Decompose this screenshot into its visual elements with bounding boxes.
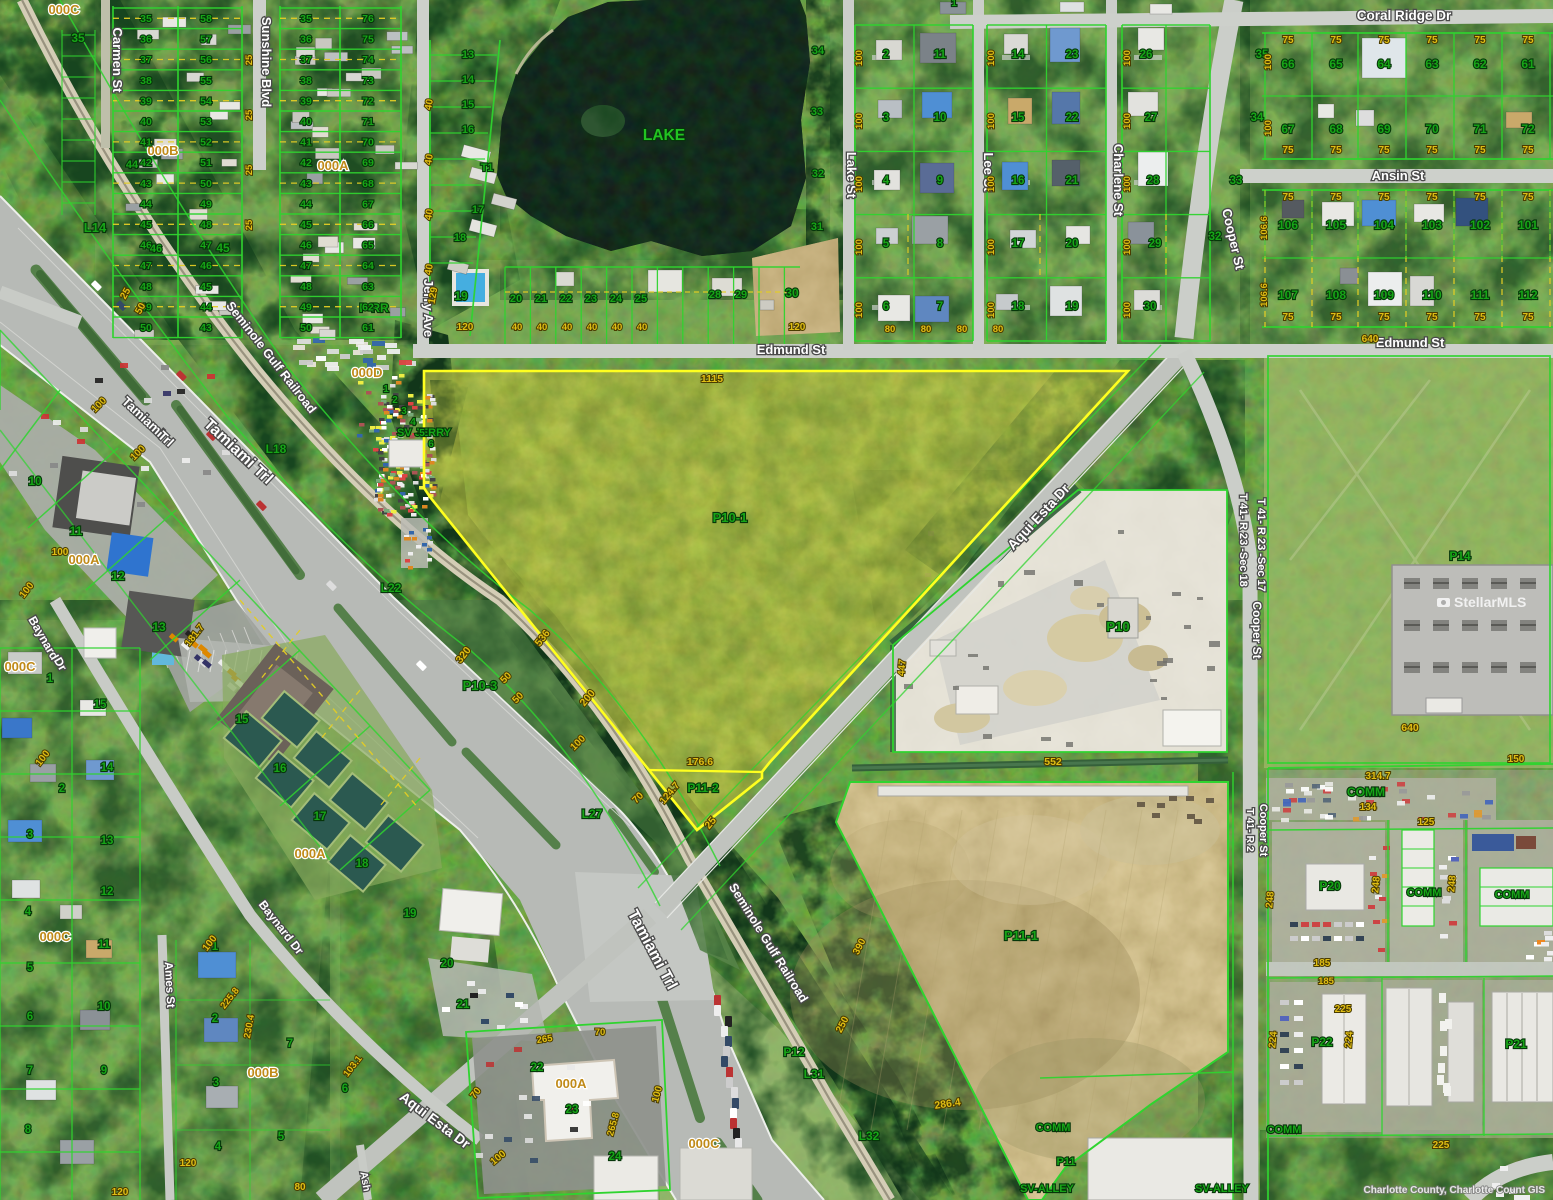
svg-text:T1: T1 [481, 162, 494, 174]
svg-text:COMM: COMM [1495, 889, 1530, 901]
svg-text:100: 100 [854, 176, 865, 192]
svg-text:30: 30 [785, 286, 799, 300]
svg-text:640: 640 [1362, 334, 1379, 345]
svg-text:49: 49 [300, 301, 312, 313]
svg-text:50: 50 [140, 322, 152, 334]
svg-text:51: 51 [200, 157, 212, 169]
svg-text:58: 58 [200, 13, 212, 25]
svg-text:19: 19 [1066, 301, 1079, 313]
svg-text:75: 75 [1426, 192, 1438, 203]
svg-text:71: 71 [1473, 122, 1487, 136]
svg-text:38: 38 [300, 75, 312, 87]
svg-text:49: 49 [200, 198, 212, 210]
svg-text:Carmen St: Carmen St [110, 27, 125, 93]
svg-text:67: 67 [362, 198, 374, 210]
svg-text:100: 100 [1263, 120, 1274, 136]
svg-text:106: 106 [1278, 218, 1298, 232]
svg-text:4: 4 [215, 1141, 222, 1153]
svg-text:40: 40 [512, 322, 523, 333]
svg-text:75: 75 [1282, 35, 1294, 46]
svg-text:248: 248 [1370, 876, 1382, 894]
svg-text:000A: 000A [317, 158, 349, 173]
svg-text:21: 21 [457, 999, 470, 1011]
svg-text:000B: 000B [247, 1065, 278, 1080]
svg-text:7: 7 [27, 1065, 33, 1077]
svg-text:18: 18 [454, 232, 466, 244]
svg-text:100: 100 [986, 239, 997, 255]
svg-text:48: 48 [140, 281, 152, 293]
svg-text:40: 40 [140, 116, 152, 128]
svg-text:T 41- R 2: T 41- R 2 [1244, 808, 1256, 852]
svg-text:75: 75 [1426, 145, 1438, 156]
svg-text:38: 38 [140, 75, 152, 87]
svg-text:110: 110 [1422, 288, 1442, 302]
svg-text:20: 20 [1066, 238, 1079, 250]
svg-text:35: 35 [300, 13, 312, 25]
svg-text:COMM: COMM [1036, 1122, 1071, 1134]
svg-text:T 41- R 23 -Sec 18: T 41- R 23 -Sec 18 [1237, 493, 1249, 587]
svg-text:19: 19 [404, 908, 417, 920]
svg-text:40: 40 [587, 322, 598, 333]
svg-text:44: 44 [300, 198, 312, 210]
svg-text:L32: L32 [859, 1129, 880, 1143]
svg-text:314.7: 314.7 [1365, 771, 1390, 782]
svg-text:100: 100 [1122, 113, 1133, 129]
svg-text:64: 64 [1377, 57, 1391, 71]
svg-text:33: 33 [811, 106, 823, 118]
svg-text:75: 75 [1474, 312, 1486, 323]
svg-text:32: 32 [1209, 231, 1222, 243]
svg-text:185: 185 [1318, 976, 1335, 987]
svg-text:37: 37 [300, 54, 312, 66]
svg-text:40: 40 [612, 322, 623, 333]
svg-text:17: 17 [1012, 238, 1025, 250]
svg-text:36: 36 [300, 34, 312, 46]
svg-text:47: 47 [200, 240, 212, 252]
svg-text:20: 20 [510, 293, 522, 305]
svg-text:1: 1 [951, 0, 957, 9]
svg-text:21: 21 [1066, 175, 1079, 187]
svg-text:63: 63 [362, 281, 374, 293]
svg-text:66: 66 [1281, 57, 1295, 71]
svg-text:80: 80 [885, 324, 896, 335]
svg-text:14: 14 [1012, 49, 1025, 61]
svg-text:P14: P14 [1449, 549, 1471, 563]
svg-text:265: 265 [536, 1033, 554, 1046]
svg-text:50: 50 [200, 178, 212, 190]
svg-text:53: 53 [200, 116, 212, 128]
svg-text:P21: P21 [1505, 1037, 1527, 1051]
svg-text:16: 16 [274, 763, 287, 775]
svg-text:65: 65 [362, 240, 374, 252]
svg-text:72: 72 [1521, 122, 1535, 136]
svg-text:5: 5 [27, 962, 34, 974]
svg-text:7: 7 [937, 301, 943, 313]
svg-text:30: 30 [1144, 301, 1157, 313]
svg-text:100: 100 [1122, 302, 1133, 318]
svg-text:100: 100 [1122, 176, 1133, 192]
svg-text:48: 48 [200, 219, 212, 231]
svg-text:Cooper St: Cooper St [1257, 804, 1269, 857]
svg-text:13: 13 [462, 49, 474, 61]
svg-text:52: 52 [200, 137, 212, 149]
svg-text:23: 23 [585, 293, 597, 305]
svg-text:43: 43 [300, 178, 312, 190]
svg-text:13: 13 [152, 620, 166, 634]
svg-text:75: 75 [1330, 192, 1342, 203]
svg-text:21: 21 [535, 293, 547, 305]
svg-text:45: 45 [200, 281, 212, 293]
svg-text:44: 44 [200, 301, 212, 313]
svg-text:100: 100 [854, 113, 865, 129]
svg-text:111: 111 [1471, 288, 1490, 302]
svg-text:100: 100 [1263, 54, 1274, 70]
svg-text:73: 73 [362, 75, 374, 87]
svg-text:61: 61 [1521, 57, 1535, 71]
svg-text:Sunshine Blvd: Sunshine Blvd [259, 17, 274, 107]
svg-text:248: 248 [1446, 875, 1458, 893]
svg-text:41: 41 [140, 137, 152, 149]
svg-text:69: 69 [1377, 122, 1391, 136]
svg-text:225: 225 [1433, 1140, 1450, 1151]
svg-text:45: 45 [300, 219, 312, 231]
svg-text:70: 70 [1425, 122, 1439, 136]
svg-text:100: 100 [854, 239, 865, 255]
svg-text:185: 185 [1314, 958, 1331, 969]
svg-text:P20: P20 [1319, 879, 1341, 893]
svg-text:T 41- R 23 -Sec 17: T 41- R 23 -Sec 17 [1255, 498, 1267, 592]
svg-text:61: 61 [362, 322, 374, 334]
svg-text:640: 640 [1401, 722, 1419, 734]
svg-text:44: 44 [140, 198, 152, 210]
svg-text:10: 10 [28, 474, 42, 488]
svg-text:8: 8 [25, 1124, 32, 1136]
svg-text:75: 75 [1426, 35, 1438, 46]
svg-text:23: 23 [566, 1104, 579, 1116]
svg-text:39: 39 [300, 95, 312, 107]
svg-text:100: 100 [1122, 50, 1133, 66]
svg-text:107: 107 [1278, 288, 1298, 302]
svg-text:COMM: COMM [1347, 785, 1385, 799]
svg-text:25: 25 [244, 164, 255, 175]
svg-text:Charlotte County, Charlotte Co: Charlotte County, Charlotte Count GIS [1364, 1185, 1546, 1196]
svg-text:45: 45 [140, 219, 152, 231]
svg-text:56: 56 [200, 54, 212, 66]
svg-text:46: 46 [200, 260, 212, 272]
svg-text:39: 39 [140, 95, 152, 107]
svg-text:5: 5 [883, 238, 890, 250]
svg-text:4: 4 [25, 906, 32, 918]
svg-text:000C: 000C [48, 2, 80, 17]
svg-text:45: 45 [216, 241, 230, 255]
svg-text:Ames St: Ames St [162, 962, 176, 1009]
svg-text:15: 15 [94, 699, 107, 711]
svg-text:55: 55 [200, 75, 212, 87]
svg-text:8: 8 [937, 238, 944, 250]
svg-text:67: 67 [1281, 122, 1295, 136]
svg-text:5: 5 [278, 1131, 285, 1143]
svg-text:75: 75 [1378, 145, 1390, 156]
svg-text:125: 125 [1418, 817, 1435, 828]
svg-text:68: 68 [362, 178, 374, 190]
svg-text:65: 65 [1329, 57, 1343, 71]
svg-text:LAKE: LAKE [643, 127, 685, 144]
svg-text:40: 40 [537, 322, 548, 333]
svg-text:75: 75 [1522, 145, 1534, 156]
svg-text:1: 1 [383, 384, 389, 395]
svg-text:68: 68 [1329, 122, 1343, 136]
svg-text:14: 14 [462, 74, 475, 86]
svg-text:106.6: 106.6 [1259, 216, 1270, 240]
svg-text:27: 27 [1145, 112, 1158, 124]
svg-text:28: 28 [709, 289, 721, 301]
svg-text:P22: P22 [1311, 1035, 1333, 1049]
svg-text:75: 75 [1474, 35, 1486, 46]
svg-text:108: 108 [1326, 288, 1346, 302]
svg-text:19: 19 [454, 289, 468, 303]
svg-text:4: 4 [410, 417, 416, 428]
svg-text:24: 24 [610, 293, 623, 305]
svg-text:11: 11 [70, 524, 83, 538]
svg-text:3: 3 [27, 829, 33, 841]
svg-text:000A: 000A [68, 552, 100, 567]
svg-text:5: 5 [419, 428, 425, 439]
svg-text:63: 63 [1425, 57, 1439, 71]
svg-text:106.6: 106.6 [1259, 283, 1270, 307]
svg-text:17: 17 [472, 204, 484, 216]
svg-text:3: 3 [883, 112, 889, 124]
svg-text:100: 100 [854, 302, 865, 318]
svg-text:000D: 000D [351, 365, 382, 380]
svg-text:34: 34 [1251, 112, 1264, 124]
svg-text:12: 12 [111, 569, 125, 583]
svg-text:29: 29 [1149, 238, 1162, 250]
svg-text:100: 100 [986, 113, 997, 129]
svg-text:75: 75 [1378, 312, 1390, 323]
svg-text:Edmund St: Edmund St [1376, 335, 1445, 350]
svg-text:Ansin St: Ansin St [1372, 168, 1425, 183]
svg-text:62: 62 [362, 301, 374, 313]
svg-text:2: 2 [883, 49, 889, 61]
svg-text:104: 104 [1374, 218, 1394, 232]
svg-text:22: 22 [531, 1062, 544, 1074]
svg-text:75: 75 [1378, 35, 1390, 46]
svg-text:35: 35 [71, 31, 85, 45]
svg-text:000C: 000C [39, 929, 71, 944]
svg-text:224: 224 [1267, 1031, 1279, 1049]
svg-text:176.6: 176.6 [687, 756, 713, 768]
svg-text:75: 75 [1330, 145, 1342, 156]
svg-text:40: 40 [300, 116, 312, 128]
svg-text:120: 120 [180, 1158, 197, 1169]
svg-text:6: 6 [27, 1011, 33, 1023]
svg-text:120: 120 [112, 1187, 129, 1198]
svg-text:P10-3: P10-3 [463, 678, 498, 693]
svg-text:47: 47 [300, 260, 312, 272]
svg-text:P12: P12 [783, 1045, 805, 1059]
svg-text:2: 2 [59, 783, 65, 795]
svg-text:57: 57 [200, 34, 212, 46]
svg-text:43: 43 [200, 322, 212, 334]
svg-text:69: 69 [362, 157, 374, 169]
svg-text:74: 74 [362, 54, 374, 66]
svg-text:100: 100 [986, 50, 997, 66]
svg-text:100: 100 [854, 50, 865, 66]
svg-text:105: 105 [1326, 218, 1346, 232]
svg-text:1: 1 [47, 673, 54, 685]
svg-text:72: 72 [362, 95, 374, 107]
svg-text:15: 15 [236, 714, 249, 726]
svg-text:150: 150 [1508, 754, 1525, 765]
svg-text:102: 102 [1470, 218, 1490, 232]
svg-text:40: 40 [637, 322, 648, 333]
svg-text:SV-ALLEY: SV-ALLEY [1020, 1183, 1074, 1195]
svg-text:23: 23 [1066, 49, 1079, 61]
svg-text:33: 33 [1230, 175, 1243, 187]
svg-text:18: 18 [356, 858, 369, 870]
svg-text:6: 6 [428, 439, 434, 450]
svg-text:17: 17 [314, 811, 327, 823]
svg-text:22: 22 [560, 293, 572, 305]
svg-text:12: 12 [101, 886, 114, 898]
svg-text:11: 11 [934, 49, 947, 61]
svg-text:P10-1: P10-1 [713, 510, 748, 525]
svg-text:9: 9 [101, 1065, 107, 1077]
svg-text:75: 75 [1522, 312, 1534, 323]
svg-text:COMM: COMM [1267, 1124, 1302, 1136]
svg-text:10: 10 [934, 112, 947, 124]
svg-text:6: 6 [883, 301, 889, 313]
svg-text:25: 25 [244, 219, 255, 230]
svg-text:48: 48 [300, 281, 312, 293]
svg-text:75: 75 [362, 34, 374, 46]
svg-text:134: 134 [1360, 802, 1377, 813]
svg-text:32: 32 [812, 168, 824, 180]
svg-text:112: 112 [1518, 288, 1538, 302]
svg-text:3: 3 [401, 406, 407, 417]
svg-text:26: 26 [1140, 49, 1153, 61]
svg-text:552: 552 [1044, 756, 1062, 768]
svg-text:L31: L31 [804, 1067, 825, 1081]
svg-text:225: 225 [1335, 1004, 1352, 1015]
svg-text:41: 41 [300, 137, 312, 149]
svg-text:24: 24 [609, 1151, 622, 1163]
svg-text:80: 80 [957, 324, 968, 335]
svg-text:76: 76 [362, 13, 374, 25]
svg-text:75: 75 [1522, 35, 1534, 46]
svg-text:3: 3 [213, 1077, 219, 1089]
svg-text:25: 25 [244, 109, 255, 120]
svg-text:2: 2 [392, 395, 398, 406]
svg-text:70: 70 [595, 1027, 606, 1038]
svg-text:100: 100 [986, 302, 997, 318]
svg-text:25: 25 [244, 54, 255, 65]
svg-text:37: 37 [140, 54, 152, 66]
svg-text:7: 7 [287, 1038, 293, 1050]
svg-text:75: 75 [1474, 192, 1486, 203]
svg-text:66: 66 [362, 219, 374, 231]
svg-text:11: 11 [98, 939, 111, 951]
svg-text:44: 44 [126, 159, 139, 171]
svg-text:100: 100 [986, 176, 997, 192]
svg-text:14: 14 [101, 762, 114, 774]
svg-text:Coral Ridge Dr: Coral Ridge Dr [1357, 8, 1452, 23]
svg-text:P11-2: P11-2 [687, 781, 719, 795]
svg-text:62: 62 [1473, 57, 1487, 71]
svg-text:80: 80 [294, 1182, 306, 1193]
svg-text:75: 75 [1282, 145, 1294, 156]
svg-text:SV-ALLEY: SV-ALLEY [1195, 1183, 1249, 1195]
svg-text:000A: 000A [294, 846, 326, 861]
svg-text:71: 71 [362, 116, 374, 128]
svg-text:40: 40 [562, 322, 573, 333]
svg-text:000C: 000C [688, 1136, 720, 1151]
svg-text:103: 103 [1422, 218, 1442, 232]
svg-text:50: 50 [300, 322, 312, 334]
svg-text:43: 43 [140, 178, 152, 190]
svg-text:75: 75 [1330, 35, 1342, 46]
svg-text:64: 64 [362, 260, 374, 272]
svg-text:25: 25 [635, 293, 647, 305]
svg-text:L27: L27 [582, 807, 603, 821]
svg-text:75: 75 [1330, 312, 1342, 323]
svg-text:28: 28 [1147, 175, 1160, 187]
svg-text:54: 54 [200, 95, 212, 107]
svg-text:80: 80 [993, 324, 1004, 335]
svg-text:15: 15 [462, 99, 474, 111]
svg-text:13: 13 [101, 835, 114, 847]
svg-text:100: 100 [1122, 239, 1133, 255]
svg-text:9: 9 [937, 175, 943, 187]
svg-text:75: 75 [1282, 312, 1294, 323]
svg-text:248: 248 [1264, 891, 1276, 909]
svg-text:6: 6 [342, 1083, 348, 1095]
svg-text:224: 224 [1343, 1031, 1355, 1049]
svg-text:000B: 000B [147, 143, 178, 158]
svg-text:46: 46 [150, 243, 162, 255]
svg-text:2: 2 [212, 1013, 218, 1025]
svg-text:46: 46 [300, 240, 312, 252]
svg-text:Edmund St: Edmund St [757, 342, 826, 357]
svg-text:101: 101 [1518, 218, 1538, 232]
svg-text:16: 16 [462, 124, 474, 136]
svg-text:StellarMLS: StellarMLS [1454, 594, 1526, 610]
svg-text:20: 20 [441, 958, 454, 970]
svg-text:P11-1: P11-1 [1004, 928, 1038, 943]
svg-text:120: 120 [457, 322, 474, 333]
svg-text:120: 120 [789, 322, 806, 333]
svg-text:34: 34 [812, 45, 825, 57]
svg-text:447: 447 [896, 659, 908, 677]
svg-text:16: 16 [1012, 175, 1025, 187]
svg-text:COMM: COMM [1407, 887, 1442, 899]
svg-text:P10: P10 [1106, 619, 1129, 634]
svg-text:31: 31 [811, 221, 823, 233]
svg-text:4: 4 [883, 175, 890, 187]
svg-text:47: 47 [140, 260, 152, 272]
svg-text:29: 29 [735, 289, 747, 301]
svg-text:000C: 000C [4, 659, 36, 674]
svg-text:15: 15 [1012, 112, 1025, 124]
svg-text:1115: 1115 [701, 373, 723, 385]
svg-text:109: 109 [1374, 288, 1394, 302]
svg-text:75: 75 [1474, 145, 1486, 156]
svg-text:75: 75 [1426, 312, 1438, 323]
svg-text:L22: L22 [381, 581, 402, 595]
svg-text:L14: L14 [84, 220, 107, 235]
svg-text:70: 70 [362, 137, 374, 149]
svg-text:42: 42 [300, 157, 312, 169]
